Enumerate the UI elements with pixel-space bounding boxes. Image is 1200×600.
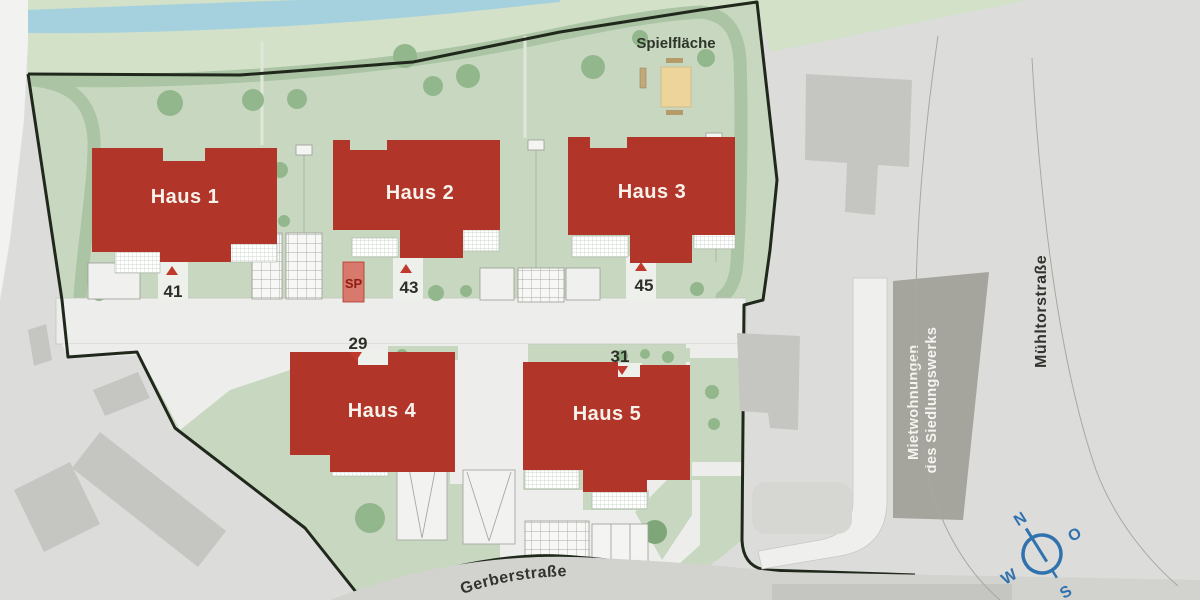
site-plan: Haus 1 Haus 2 Haus 3 Haus 4 Haus 5 SP 41… — [0, 0, 1200, 600]
sp-parking-box: SP — [343, 262, 364, 302]
site-road — [56, 298, 746, 344]
entrance-43-number: 43 — [400, 278, 419, 297]
site-plan-canvas: Haus 1 Haus 2 Haus 3 Haus 4 Haus 5 SP 41… — [0, 0, 1200, 600]
bench — [666, 58, 683, 63]
haus-5-label: Haus 5 — [573, 403, 642, 425]
sandbox — [661, 67, 691, 107]
haus-1-label: Haus 1 — [151, 186, 220, 208]
sp-label: SP — [345, 276, 363, 291]
haus-2-label: Haus 2 — [386, 182, 455, 204]
entrance-41-number: 41 — [164, 282, 183, 301]
entrance-29-number: 29 — [349, 334, 368, 353]
play-equipment — [640, 68, 646, 88]
haus-4-label: Haus 4 — [348, 400, 417, 422]
parking-block — [752, 482, 852, 534]
entrance-31-number: 31 — [611, 347, 630, 366]
haus-3-label: Haus 3 — [618, 181, 687, 203]
bench — [666, 110, 683, 115]
muehltorstrasse-label: Mühltorstraße — [1033, 255, 1050, 368]
playground-label: Spielfläche — [636, 35, 715, 52]
entrance-45-number: 45 — [635, 276, 654, 295]
